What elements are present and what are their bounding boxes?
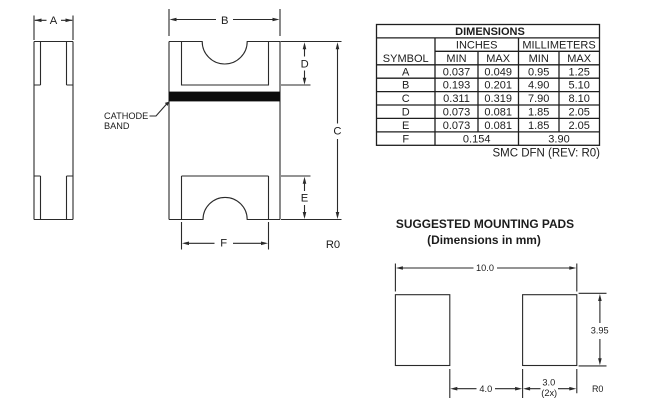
svg-text:F: F [220,238,227,250]
svg-text:1.25: 1.25 [568,66,589,78]
svg-text:8.10: 8.10 [568,93,589,105]
svg-text:MIN: MIN [446,53,466,65]
svg-text:SUGGESTED MOUNTING PADS: SUGGESTED MOUNTING PADS [396,217,574,231]
svg-text:0.95: 0.95 [528,66,549,78]
svg-text:DIMENSIONS: DIMENSIONS [455,26,525,38]
svg-text:D: D [402,107,410,119]
svg-text:0.081: 0.081 [484,120,512,132]
svg-text:C: C [333,125,341,137]
svg-text:10.0: 10.0 [476,263,494,273]
svg-text:MAX: MAX [486,53,511,65]
svg-text:SYMBOL: SYMBOL [383,53,429,65]
svg-text:MILLIMETERS: MILLIMETERS [522,40,595,52]
svg-text:B: B [402,80,409,92]
svg-text:D: D [301,59,309,71]
svg-text:1.85: 1.85 [528,120,549,132]
svg-text:MAX: MAX [567,53,592,65]
svg-text:0.311: 0.311 [443,93,470,105]
svg-text:0.081: 0.081 [484,107,512,119]
svg-text:A: A [402,66,410,78]
svg-text:5.10: 5.10 [568,80,589,92]
svg-text:(2x): (2x) [541,388,557,398]
svg-text:3.95: 3.95 [591,325,609,335]
svg-text:0.049: 0.049 [484,66,512,78]
svg-text:0.319: 0.319 [484,93,512,105]
svg-text:B: B [221,15,228,27]
svg-text:0.073: 0.073 [443,107,471,119]
svg-text:0.073: 0.073 [443,120,471,132]
svg-text:INCHES: INCHES [456,40,498,52]
svg-text:R0: R0 [592,384,604,394]
svg-text:CATHODE: CATHODE [104,111,148,121]
svg-text:SMC DFN (REV: R0): SMC DFN (REV: R0) [492,148,600,160]
svg-text:0.154: 0.154 [463,133,491,145]
svg-text:2.05: 2.05 [568,107,589,119]
svg-text:4.0: 4.0 [479,384,492,394]
svg-text:(Dimensions in mm): (Dimensions in mm) [427,233,541,247]
svg-text:0.037: 0.037 [443,66,471,78]
svg-text:A: A [50,15,58,27]
svg-text:0.201: 0.201 [484,80,512,92]
svg-text:E: E [402,120,409,132]
svg-text:7.90: 7.90 [528,93,549,105]
svg-text:BAND: BAND [104,121,130,131]
svg-text:MIN: MIN [529,53,549,65]
svg-text:E: E [301,193,308,205]
svg-text:2.05: 2.05 [568,120,589,132]
svg-text:C: C [402,93,410,105]
svg-text:4.90: 4.90 [528,80,549,92]
svg-text:R0: R0 [326,239,340,251]
svg-text:F: F [402,133,409,145]
svg-text:0.193: 0.193 [443,80,471,92]
svg-text:3.90: 3.90 [548,133,569,145]
svg-text:3.0: 3.0 [542,377,555,387]
svg-text:1.85: 1.85 [528,107,549,119]
